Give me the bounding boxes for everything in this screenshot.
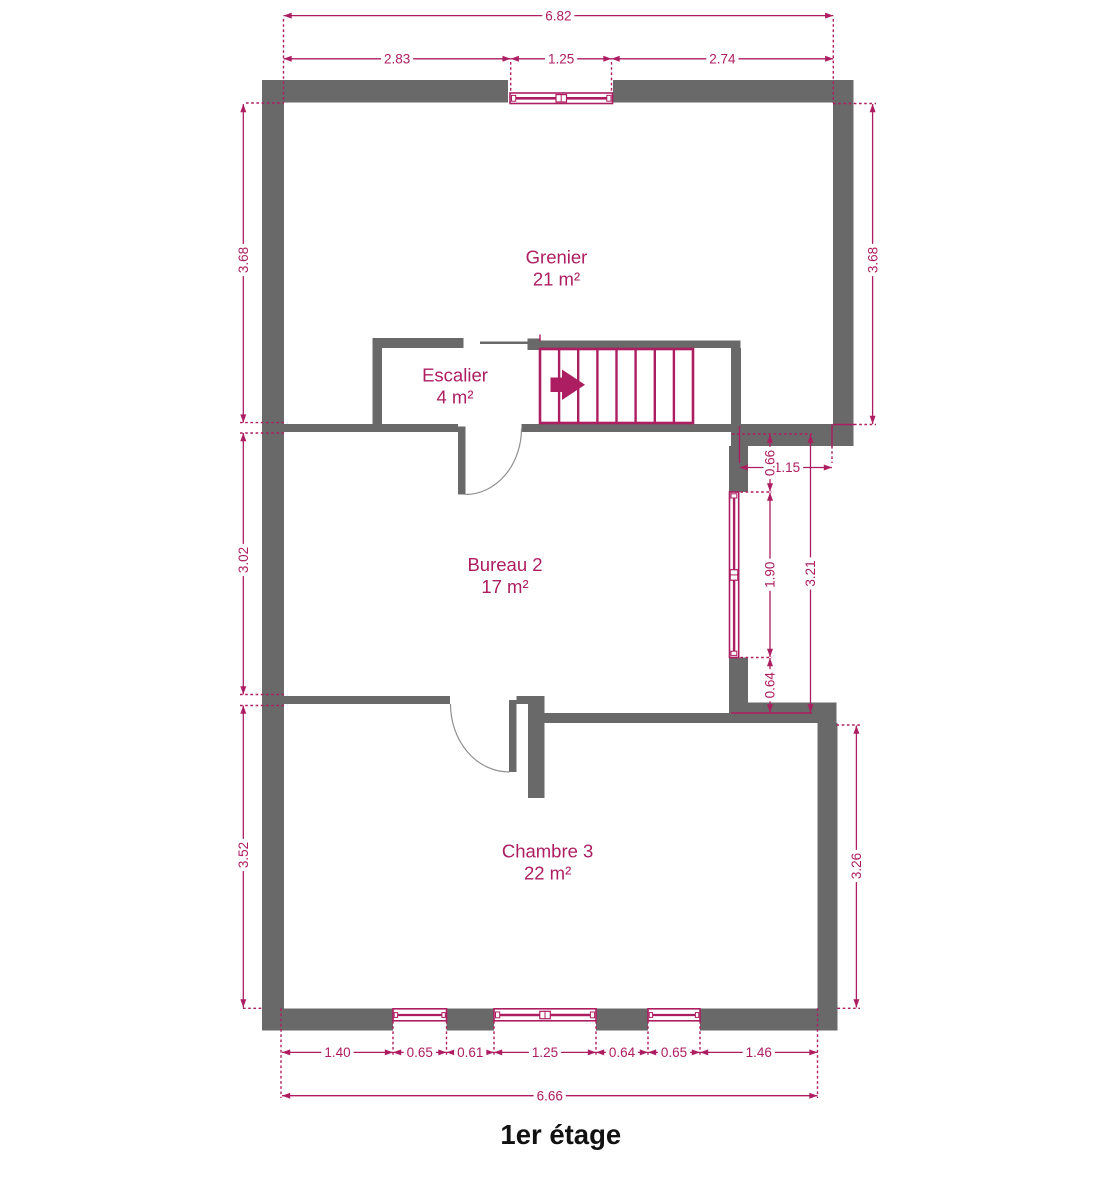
- svg-text:2.74: 2.74: [709, 52, 736, 67]
- svg-text:21 m²: 21 m²: [533, 269, 580, 290]
- svg-text:1.25: 1.25: [532, 1045, 558, 1060]
- svg-text:6.66: 6.66: [537, 1088, 563, 1103]
- svg-text:2.83: 2.83: [384, 52, 410, 67]
- svg-text:0.64: 0.64: [609, 1045, 636, 1060]
- svg-text:0.61: 0.61: [457, 1045, 483, 1060]
- svg-text:3.68: 3.68: [865, 247, 880, 273]
- svg-text:17 m²: 17 m²: [481, 576, 528, 597]
- svg-text:6.82: 6.82: [545, 8, 571, 23]
- svg-text:1.15: 1.15: [774, 460, 800, 475]
- svg-text:1.40: 1.40: [324, 1045, 350, 1060]
- svg-text:3.52: 3.52: [236, 842, 251, 868]
- svg-text:Escalier: Escalier: [422, 365, 488, 386]
- svg-text:22 m²: 22 m²: [524, 863, 571, 884]
- svg-text:0.65: 0.65: [407, 1045, 433, 1060]
- svg-text:Chambre 3: Chambre 3: [502, 841, 594, 862]
- svg-text:1.46: 1.46: [746, 1045, 772, 1060]
- svg-text:4 m²: 4 m²: [437, 387, 474, 408]
- svg-text:3.21: 3.21: [803, 560, 818, 586]
- svg-text:0.66: 0.66: [763, 450, 778, 476]
- svg-text:3.26: 3.26: [849, 853, 864, 879]
- svg-text:0.65: 0.65: [661, 1045, 687, 1060]
- svg-text:Bureau 2: Bureau 2: [467, 554, 542, 575]
- svg-text:1.90: 1.90: [763, 562, 778, 588]
- svg-text:1.25: 1.25: [548, 52, 574, 67]
- svg-text:Grenier: Grenier: [526, 247, 588, 268]
- svg-text:0.64: 0.64: [763, 672, 778, 699]
- svg-text:1er étage: 1er étage: [500, 1119, 621, 1150]
- svg-text:3.02: 3.02: [236, 547, 251, 573]
- svg-text:3.68: 3.68: [236, 247, 251, 273]
